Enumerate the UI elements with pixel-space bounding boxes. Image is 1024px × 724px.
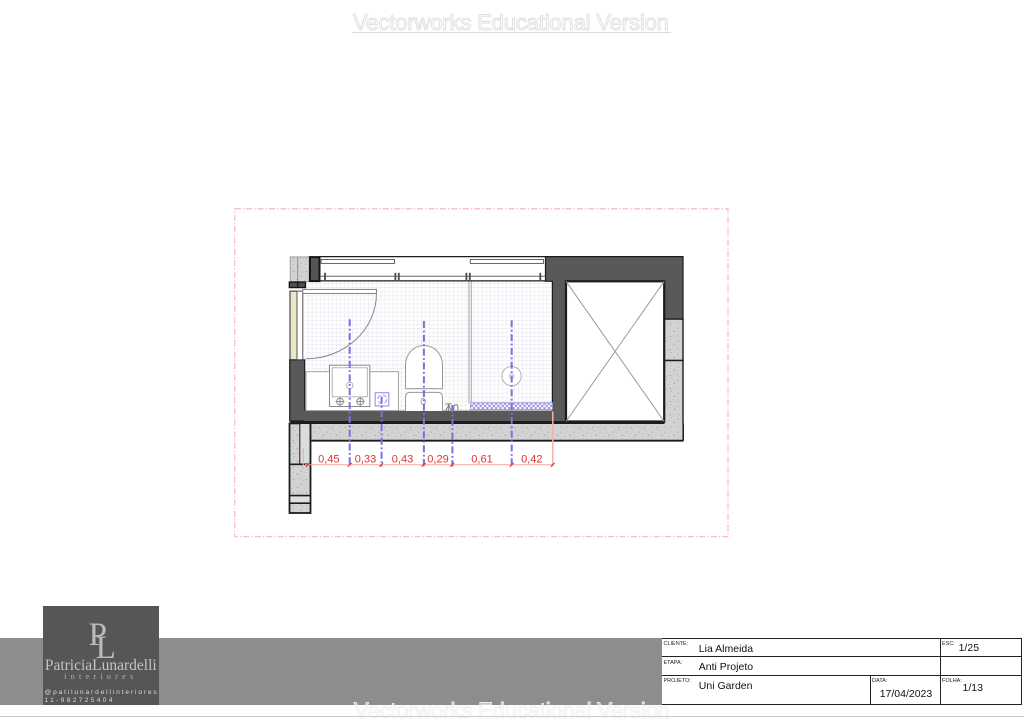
svg-text:0,61: 0,61 <box>471 454 492 466</box>
svg-text:0,45: 0,45 <box>318 454 339 466</box>
svg-text:0,42: 0,42 <box>521 454 542 466</box>
svg-text:0,29: 0,29 <box>427 454 448 466</box>
svg-text:0,33: 0,33 <box>355 454 376 466</box>
svg-text:0,43: 0,43 <box>392 454 413 466</box>
